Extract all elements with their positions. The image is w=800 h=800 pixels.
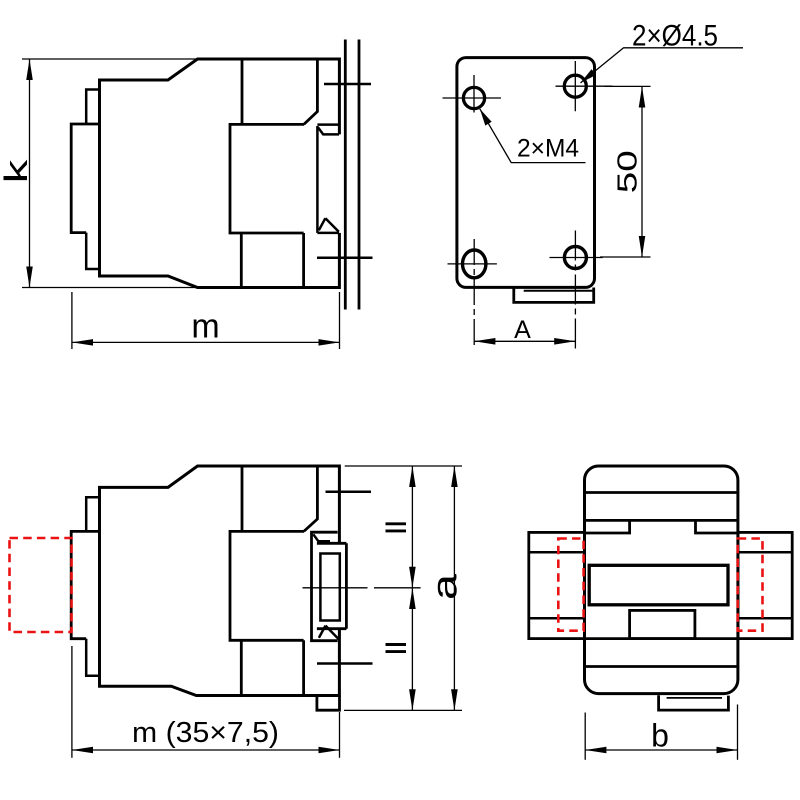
svg-text:50: 50 — [612, 150, 643, 193]
svg-text:A: A — [514, 316, 531, 344]
svg-text:a: a — [425, 573, 464, 600]
svg-text:m (35×7,5): m (35×7,5) — [132, 717, 279, 749]
svg-text:k: k — [0, 158, 34, 183]
svg-text:b: b — [651, 718, 669, 754]
svg-text:2×M4: 2×M4 — [517, 135, 579, 162]
svg-text:m: m — [191, 307, 219, 345]
svg-text:2×Ø4.5: 2×Ø4.5 — [632, 19, 718, 52]
